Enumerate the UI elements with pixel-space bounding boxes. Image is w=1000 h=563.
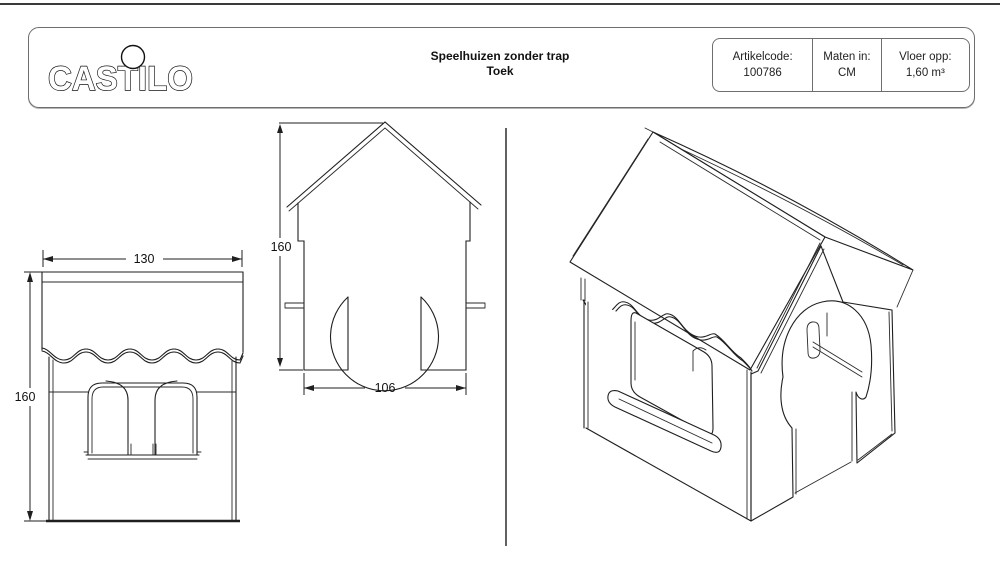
front-view-height-label: 160 — [271, 240, 292, 254]
iso-view-drawing — [570, 128, 913, 521]
side-view-width-dimension: 130 — [43, 250, 242, 267]
side-view-drawing: 130 160 — [10, 250, 243, 521]
front-view-width-dimension: 106 — [304, 373, 466, 395]
front-view-height-dimension: 160 — [265, 123, 383, 370]
drawing-sheet: CASTILO Speelhuizen zonder trap Toek Art… — [0, 0, 1000, 563]
side-view-height-label: 160 — [15, 390, 36, 404]
drawing-area: 130 160 — [0, 0, 1000, 563]
front-view-width-label: 106 — [375, 381, 396, 395]
front-view-drawing: 160 106 — [265, 122, 485, 395]
side-view-height-dimension: 160 — [10, 272, 46, 521]
side-view-width-label: 130 — [134, 252, 155, 266]
